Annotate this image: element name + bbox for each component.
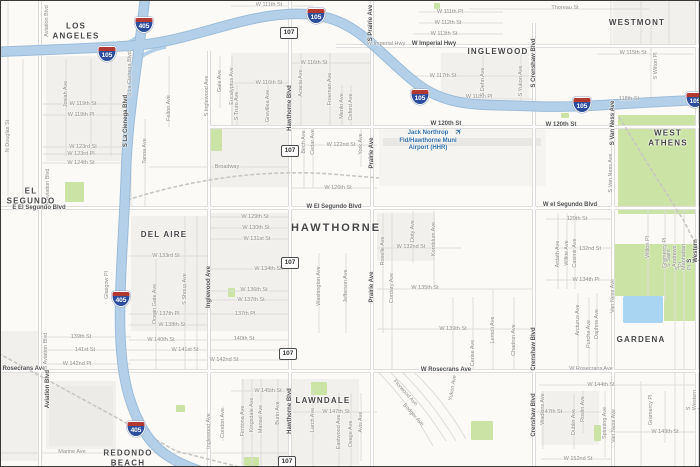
park-area (614, 244, 700, 296)
city-block (211, 213, 289, 331)
map-roads-layer (1, 1, 700, 467)
city-block (241, 379, 359, 465)
pond-water (623, 296, 663, 323)
airport-ground (383, 138, 541, 146)
city-block (46, 56, 131, 161)
park-area (471, 421, 493, 440)
park-area (434, 3, 440, 9)
park-area (664, 296, 700, 321)
city-block (1, 331, 43, 461)
minor-street-curve (379, 373, 433, 446)
airport-ground (379, 129, 546, 186)
map-canvas[interactable]: W 111th StW 111th PlW 112th StW 113th St… (0, 0, 700, 467)
park-area (594, 425, 601, 441)
city-block (541, 391, 599, 445)
park-area (561, 113, 569, 118)
minor-street-curve (391, 373, 446, 441)
industrial-block (49, 386, 113, 446)
park-area (65, 182, 84, 202)
minor-street-curve (403, 373, 456, 441)
city-block (613, 1, 699, 45)
park-area (176, 405, 185, 412)
park-area (618, 115, 700, 214)
park-area (228, 288, 235, 297)
city-block (377, 213, 435, 261)
